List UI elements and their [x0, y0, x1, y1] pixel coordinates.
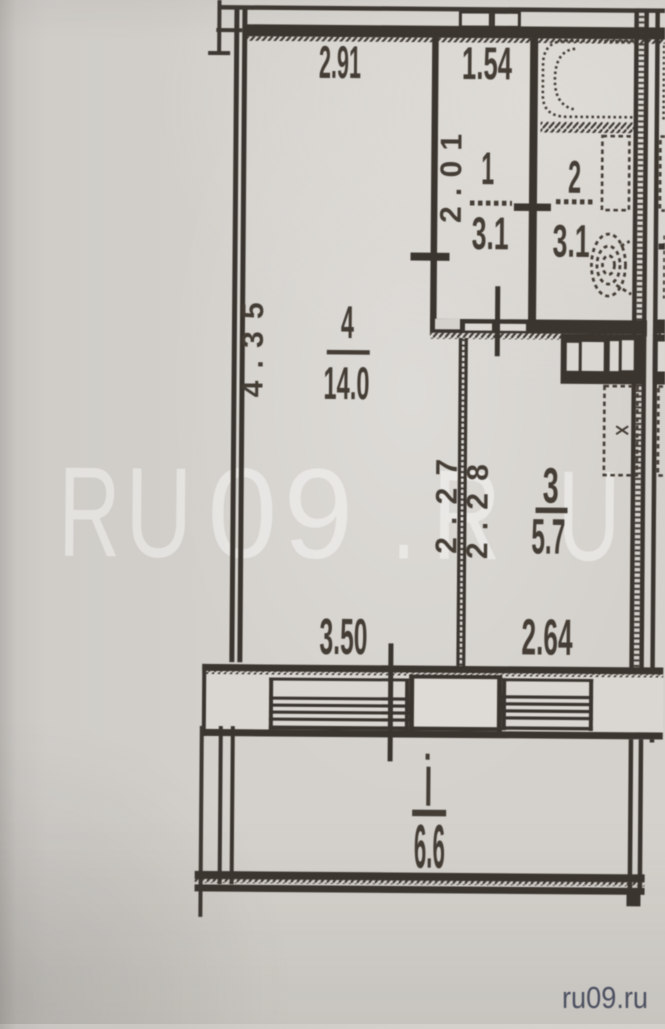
svg-text:3.1: 3.1	[552, 215, 589, 267]
svg-text:3.50: 3.50	[319, 608, 367, 665]
svg-text:9: 9	[283, 441, 354, 585]
svg-text:2.64: 2.64	[521, 608, 573, 665]
svg-text:1.54: 1.54	[462, 37, 513, 89]
svg-text:1: 1	[481, 142, 494, 194]
svg-text:.: .	[391, 444, 417, 587]
svg-text:4: 4	[341, 296, 355, 348]
svg-text:3.1: 3.1	[472, 207, 509, 259]
svg-text:2.91: 2.91	[319, 36, 361, 88]
svg-text:2: 2	[568, 151, 581, 203]
svg-text:2.01: 2.01	[435, 134, 469, 223]
svg-text:5.7: 5.7	[531, 509, 565, 565]
svg-text:ru09.ru: ru09.ru	[562, 980, 648, 1015]
svg-text:R: R	[58, 441, 121, 585]
svg-text:14.0: 14.0	[323, 357, 369, 409]
svg-text:U: U	[557, 445, 621, 588]
svg-text:3: 3	[543, 458, 559, 514]
svg-text:U: U	[125, 440, 193, 584]
svg-text:6.6: 6.6	[414, 813, 446, 882]
